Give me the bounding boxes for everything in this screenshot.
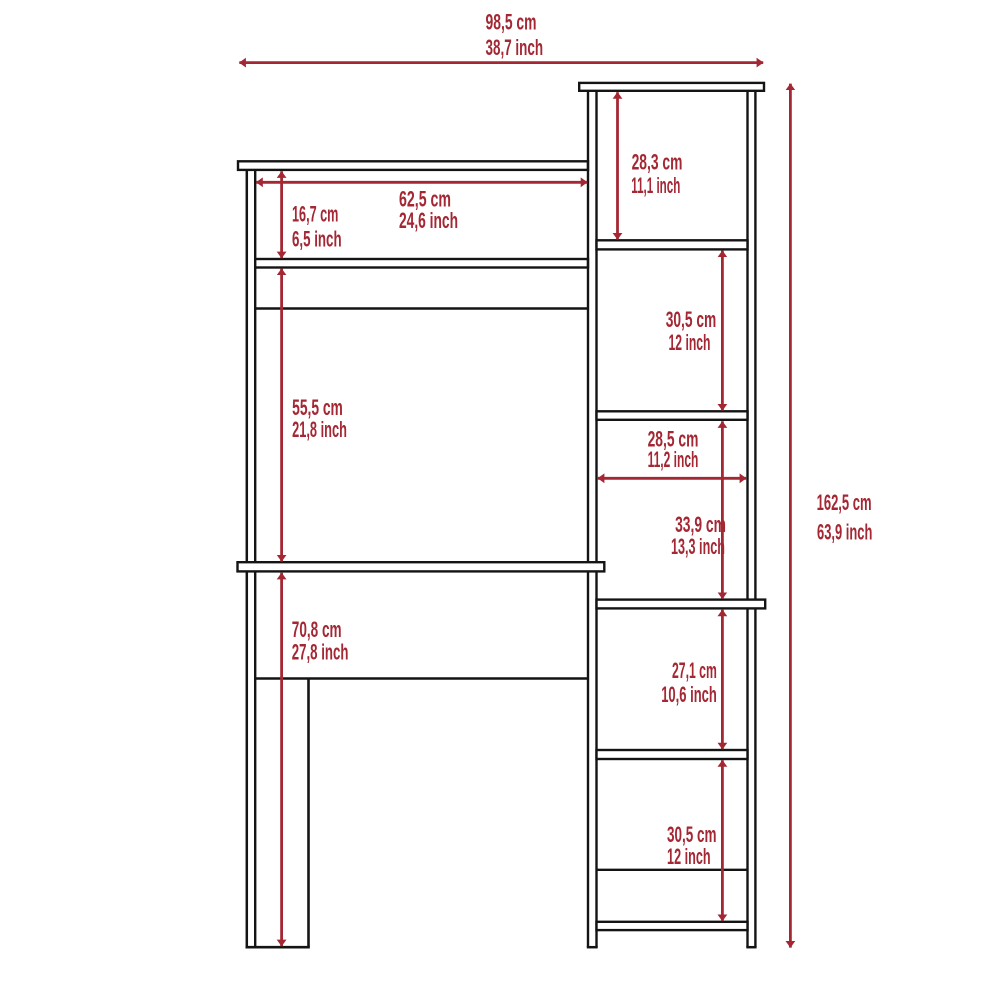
svg-text:16,7 cm: 16,7 cm: [292, 201, 338, 226]
svg-text:27,8 inch: 27,8 inch: [292, 640, 349, 665]
svg-text:28,3 cm: 28,3 cm: [632, 150, 683, 175]
svg-text:27,1 cm: 27,1 cm: [672, 658, 717, 683]
svg-text:63,9 inch: 63,9 inch: [817, 519, 872, 544]
svg-text:21,8 inch: 21,8 inch: [292, 417, 347, 442]
svg-text:11,2 inch: 11,2 inch: [648, 447, 699, 472]
svg-text:10,6 inch: 10,6 inch: [661, 682, 717, 707]
svg-text:12 inch: 12 inch: [669, 330, 711, 355]
svg-text:24,6 inch: 24,6 inch: [399, 208, 458, 233]
svg-text:30,5 cm: 30,5 cm: [666, 307, 717, 332]
svg-text:98,5 cm: 98,5 cm: [486, 10, 537, 35]
svg-text:11,1 inch: 11,1 inch: [631, 173, 680, 198]
svg-text:70,8 cm: 70,8 cm: [292, 617, 342, 642]
svg-text:162,5 cm: 162,5 cm: [817, 490, 872, 515]
svg-text:6,5 inch: 6,5 inch: [292, 227, 342, 252]
svg-text:12 inch: 12 inch: [667, 844, 711, 869]
svg-text:38,7 inch: 38,7 inch: [486, 35, 544, 60]
svg-text:13,3 inch: 13,3 inch: [671, 534, 725, 559]
